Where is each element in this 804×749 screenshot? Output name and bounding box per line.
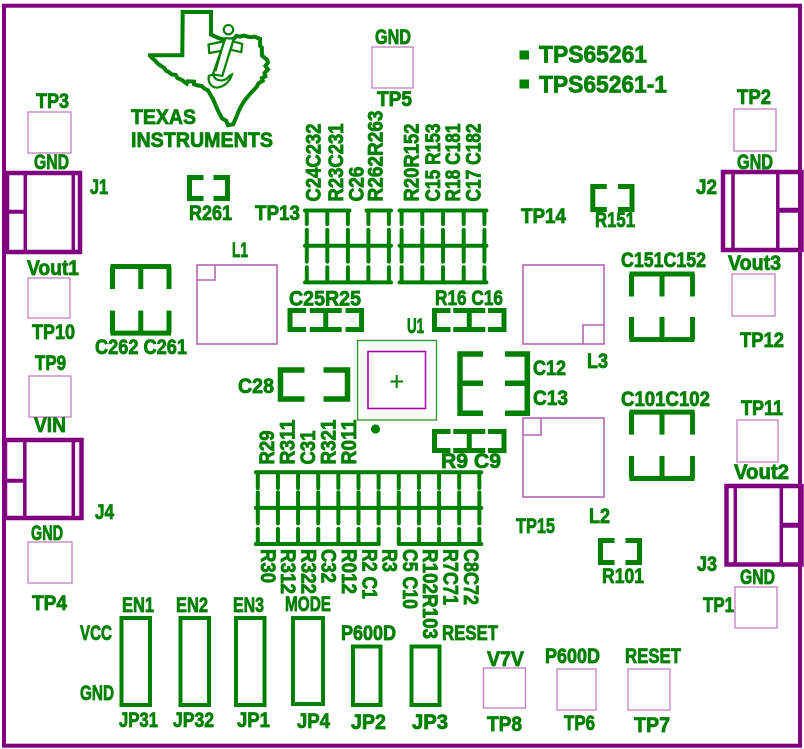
svg-text:TP7: TP7	[634, 714, 670, 737]
svg-text:R322: R322	[296, 549, 319, 594]
svg-text:C13: C13	[533, 387, 568, 410]
svg-text:C8C72: C8C72	[459, 549, 482, 605]
svg-text:GND: GND	[34, 151, 69, 174]
svg-text:EN2: EN2	[176, 594, 208, 617]
svg-text:TPS65261-1: TPS65261-1	[539, 72, 667, 99]
svg-text:R011: R011	[338, 419, 361, 464]
svg-text:RESET: RESET	[442, 622, 498, 645]
svg-text:Vout3: Vout3	[728, 252, 781, 275]
svg-text:C25R25: C25R25	[289, 288, 361, 311]
svg-text:TP11: TP11	[741, 397, 783, 420]
svg-text:GND: GND	[80, 682, 114, 705]
svg-text:R23C231: R23C231	[325, 123, 348, 201]
svg-text:Vout2: Vout2	[734, 461, 789, 484]
svg-text:C12: C12	[533, 357, 566, 380]
svg-text:JP32: JP32	[173, 709, 214, 732]
svg-text:L2: L2	[589, 505, 610, 528]
svg-text:INSTRUMENTS: INSTRUMENTS	[131, 129, 273, 152]
svg-text:C17 C182: C17 C182	[463, 124, 486, 202]
svg-text:C151C152: C151C152	[621, 249, 706, 272]
svg-text:TP12: TP12	[740, 329, 784, 352]
svg-text:TEXAS: TEXAS	[131, 106, 196, 129]
svg-text:TP13: TP13	[255, 202, 300, 225]
svg-text:L1: L1	[232, 239, 248, 262]
svg-text:J4: J4	[95, 501, 114, 524]
svg-text:P600D: P600D	[341, 622, 396, 645]
svg-text:R262R263: R262R263	[365, 111, 388, 202]
svg-text:TP9: TP9	[35, 352, 66, 375]
svg-text:J2: J2	[696, 176, 717, 199]
svg-text:RESET: RESET	[625, 645, 681, 668]
svg-text:C5 C10: C5 C10	[398, 549, 421, 609]
svg-text:U1: U1	[407, 315, 424, 338]
svg-text:P600D: P600D	[545, 645, 600, 668]
svg-text:JP1: JP1	[237, 709, 270, 732]
svg-text:R2 C1: R2 C1	[357, 549, 380, 599]
svg-text:JP2: JP2	[351, 711, 386, 734]
svg-text:TP2: TP2	[737, 86, 771, 109]
svg-text:TP10: TP10	[32, 321, 75, 344]
svg-text:TP15: TP15	[516, 515, 555, 538]
svg-text:TP8: TP8	[487, 713, 522, 736]
svg-text:EN1: EN1	[122, 594, 154, 617]
svg-text:JP4: JP4	[297, 710, 330, 733]
svg-text:C32: C32	[317, 549, 340, 583]
svg-text:R3: R3	[378, 549, 401, 572]
svg-text:J1: J1	[90, 176, 108, 199]
svg-text:EN3: EN3	[233, 594, 264, 617]
svg-text:GND: GND	[375, 26, 411, 49]
svg-text:R312: R312	[276, 549, 299, 594]
svg-text:R101: R101	[602, 565, 644, 588]
svg-text:R102R103: R102R103	[418, 549, 441, 639]
svg-text:R012: R012	[337, 549, 360, 594]
svg-text:TP14: TP14	[521, 205, 566, 228]
svg-text:VCC: VCC	[80, 622, 112, 645]
svg-text:C28: C28	[238, 375, 274, 398]
svg-text:C24C232: C24C232	[303, 124, 326, 202]
svg-text:R20R152: R20R152	[401, 124, 424, 202]
svg-text:R7C71: R7C71	[439, 549, 462, 605]
svg-text:R151: R151	[595, 209, 635, 232]
svg-text:JP3: JP3	[412, 711, 448, 734]
svg-text:JP31: JP31	[119, 709, 158, 732]
svg-text:TP3: TP3	[36, 90, 69, 113]
svg-text:TP5: TP5	[377, 88, 412, 111]
svg-text:R16 C16: R16 C16	[435, 287, 503, 310]
svg-text:GND: GND	[740, 566, 775, 589]
svg-text:MODE: MODE	[285, 593, 331, 616]
svg-text:J3: J3	[697, 553, 717, 576]
svg-text:TP4: TP4	[32, 592, 67, 615]
svg-text:TPS65261: TPS65261	[539, 42, 647, 69]
svg-text:TP6: TP6	[564, 712, 595, 735]
svg-text:R9 C9: R9 C9	[441, 450, 501, 473]
svg-text:C262 C261: C262 C261	[95, 336, 187, 359]
svg-text:R261: R261	[189, 202, 232, 225]
svg-text:L3: L3	[587, 350, 608, 373]
svg-text:VIN: VIN	[34, 414, 66, 437]
svg-text:TP1: TP1	[703, 594, 734, 617]
svg-text:C101C102: C101C102	[621, 388, 710, 411]
svg-text:R30: R30	[256, 549, 279, 583]
svg-text:Vout1: Vout1	[27, 257, 79, 280]
